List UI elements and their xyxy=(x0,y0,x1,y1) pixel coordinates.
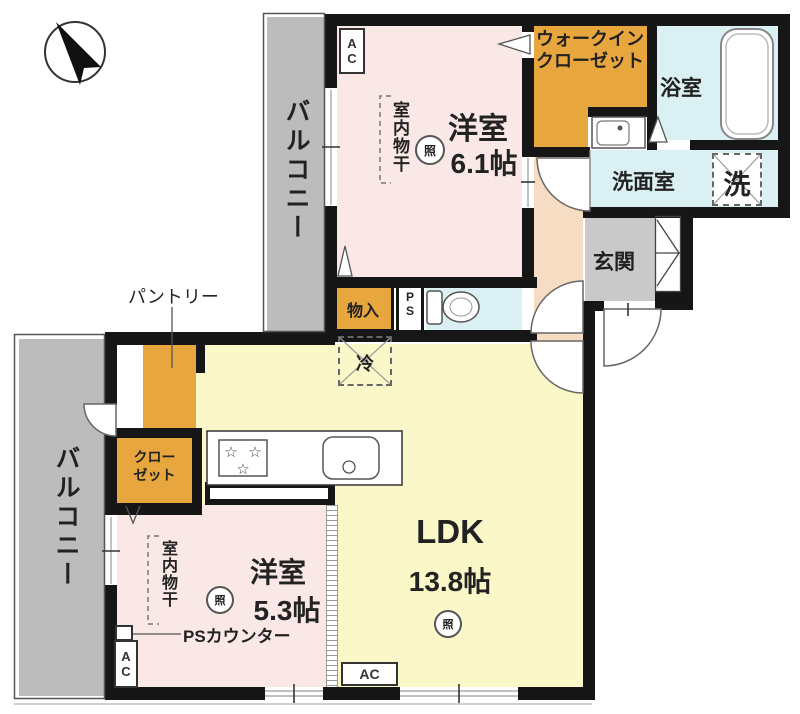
wall xyxy=(655,292,693,310)
balcony-upper-label: バルコニー xyxy=(278,98,314,243)
washroom-label: 洗面室 xyxy=(612,166,675,196)
bedroom2-drying-label: 室内物干 xyxy=(155,540,179,608)
wall xyxy=(778,14,790,218)
floor-plan: AC AC AC xyxy=(0,0,800,714)
fridge-label: 冷 xyxy=(338,350,392,376)
ldk-name: LDK xyxy=(395,513,505,551)
wall xyxy=(690,140,790,150)
entrance-label: 玄関 xyxy=(593,246,635,276)
pipe-space-label: PS xyxy=(403,290,417,318)
bedroom2-name: 洋室 xyxy=(218,551,338,591)
wall xyxy=(522,277,534,287)
wall xyxy=(522,26,534,32)
ac-box-bedroom2: AC xyxy=(114,640,138,688)
kitchen-counter-slot xyxy=(210,488,328,499)
wall xyxy=(105,687,265,700)
bedroom2-light-symbol: 照 xyxy=(206,586,234,614)
wall xyxy=(325,14,790,26)
wall xyxy=(325,26,337,88)
bedroom1-drying-label: 室内物干 xyxy=(387,101,412,173)
storage-label: 物入 xyxy=(332,297,394,321)
wall xyxy=(522,208,534,277)
ldk-size: 13.8帖 xyxy=(385,560,515,600)
ps-counter-label: PSカウンター xyxy=(183,622,291,647)
ps-counter-box xyxy=(115,625,133,641)
wall xyxy=(583,207,790,218)
bedroom1-light-symbol: 照 xyxy=(415,135,445,165)
walk-in-closet-label: ウォークイン クローゼット xyxy=(536,29,644,72)
ac-box-bedroom1: AC xyxy=(339,28,365,74)
pantry-label: パントリー xyxy=(128,283,219,309)
wall xyxy=(583,305,595,700)
pantry-corridor-floor xyxy=(117,345,143,430)
hallway-floor xyxy=(534,157,583,342)
pantry-floor xyxy=(143,345,196,430)
wall xyxy=(647,26,657,150)
vanity-sink-icon xyxy=(592,117,645,148)
washer-label: 洗 xyxy=(712,163,762,202)
walk-in-closet-floor-leg xyxy=(534,107,588,147)
wall xyxy=(105,503,202,515)
wall xyxy=(522,330,537,342)
entrance-door-arc xyxy=(604,309,661,366)
wall xyxy=(325,277,537,288)
wall xyxy=(323,687,400,700)
wall xyxy=(105,428,202,438)
shoe-cabinet xyxy=(655,216,681,292)
wall xyxy=(105,332,335,345)
wall xyxy=(518,687,595,700)
wall xyxy=(105,332,117,405)
closet-label: クロー ゼット xyxy=(117,448,192,484)
wall xyxy=(192,428,202,515)
balcony-lower-label: バルコニー xyxy=(48,445,84,590)
toilet-floor xyxy=(426,285,522,330)
wall xyxy=(196,345,205,373)
bathroom-label: 浴室 xyxy=(660,72,702,102)
ac-box-ldk: AC xyxy=(341,662,398,686)
north-arrow-icon xyxy=(45,22,105,85)
ldk-light-symbol: 照 xyxy=(434,610,462,638)
